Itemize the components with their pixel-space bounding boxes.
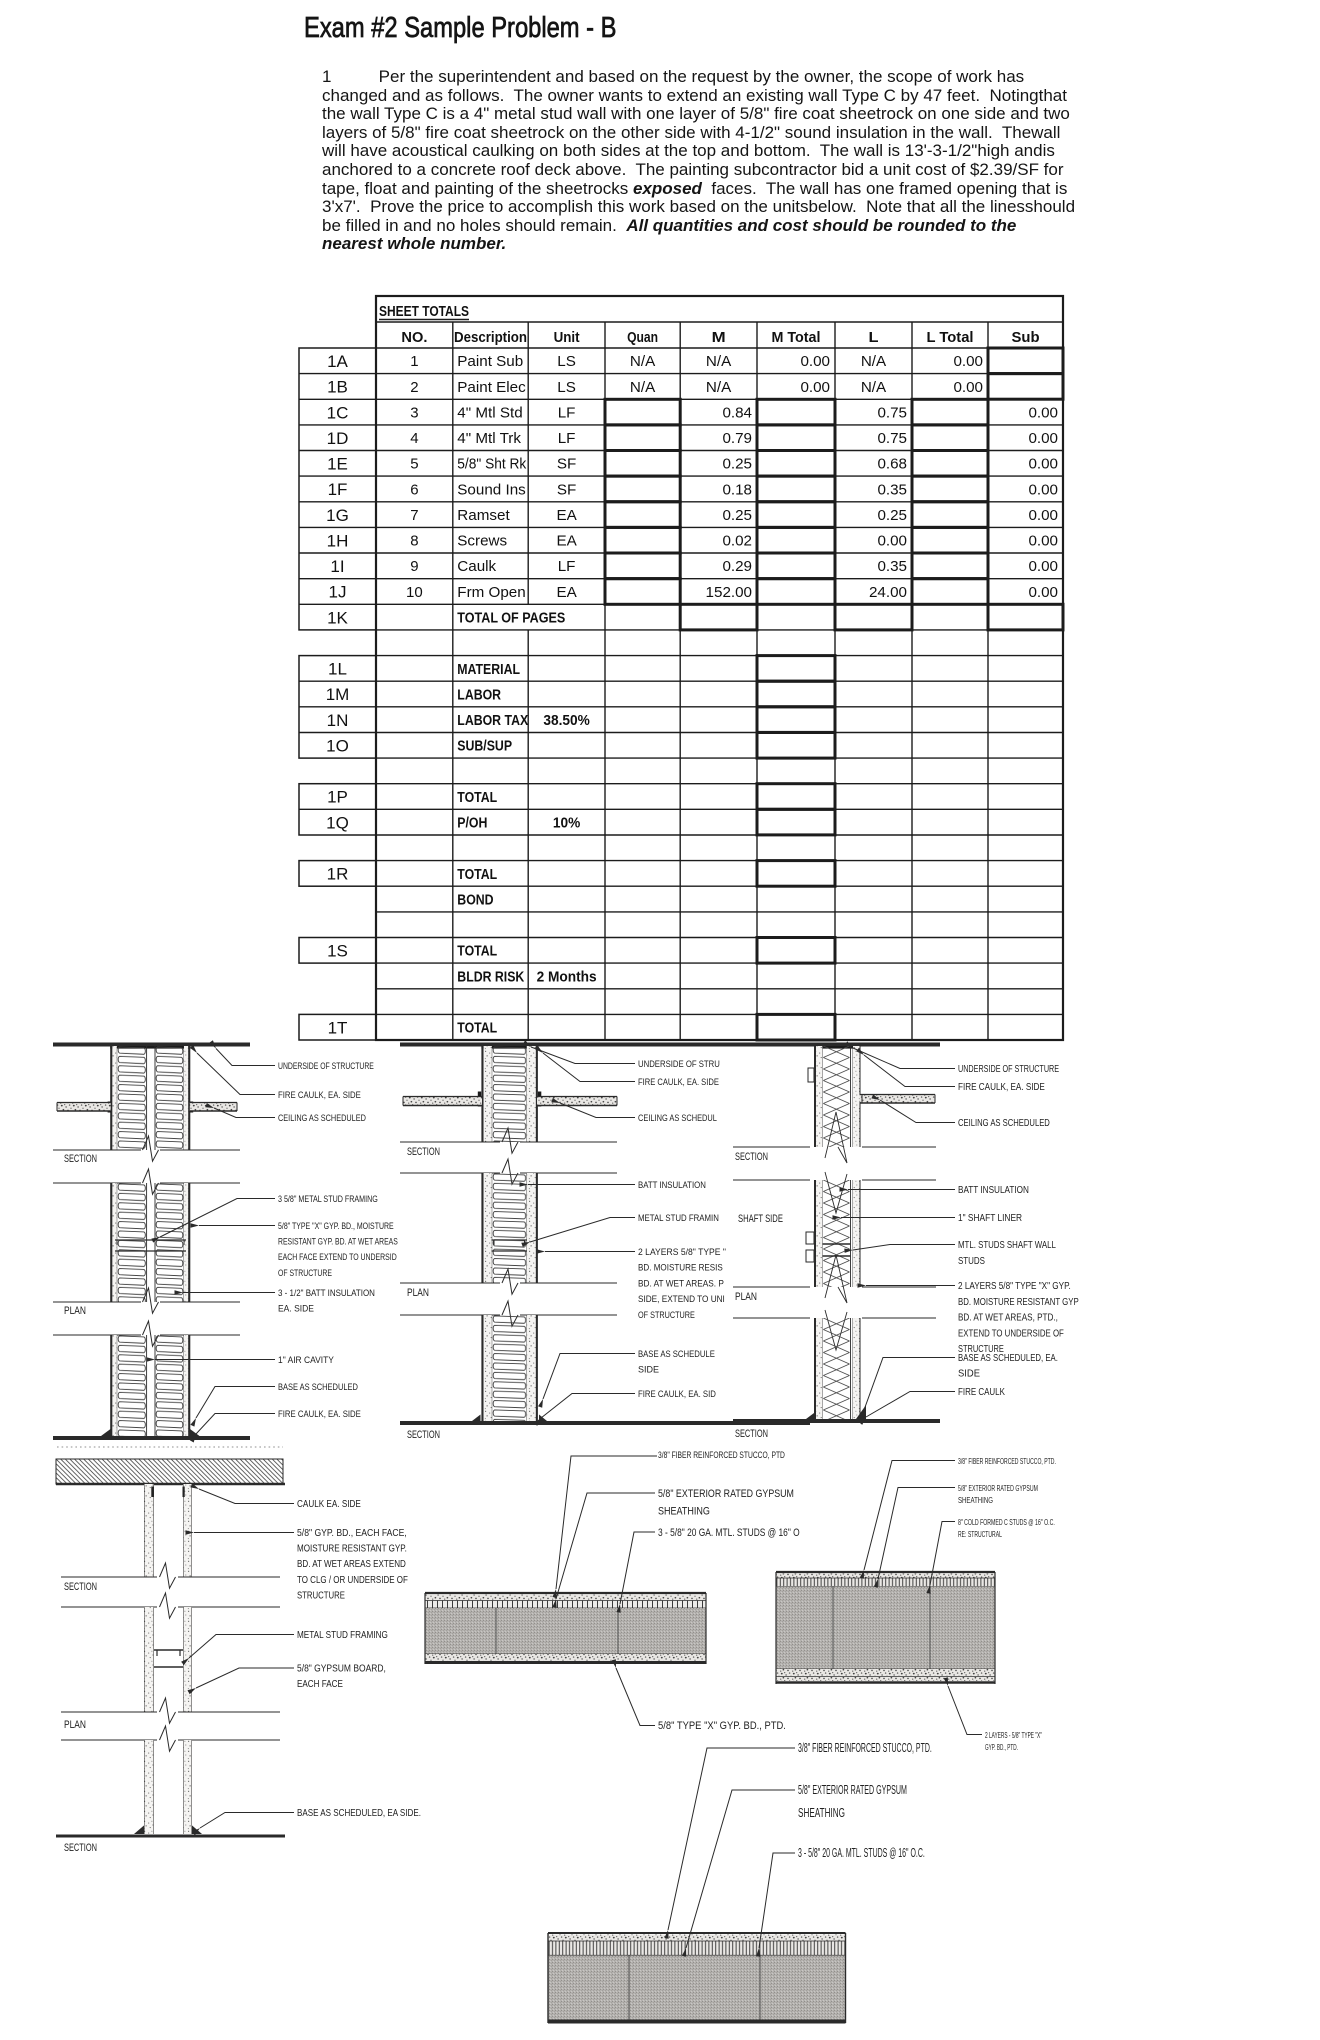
svg-text:STUDS: STUDS [958, 1255, 985, 1266]
svg-text:RESISTANT GYP. BD. AT WET AREA: RESISTANT GYP. BD. AT WET AREAS [278, 1235, 398, 1247]
svg-text:0.00: 0.00 [1028, 405, 1058, 422]
svg-text:N/A: N/A [861, 379, 887, 396]
svg-text:FIRE CAULK, EA. SIDE: FIRE CAULK, EA. SIDE [638, 1076, 719, 1087]
svg-text:LS: LS [557, 353, 576, 370]
svg-text:0.00: 0.00 [800, 379, 830, 396]
svg-text:7: 7 [410, 507, 418, 524]
svg-text:SUB/SUP: SUB/SUP [457, 738, 512, 755]
svg-text:5/8" EXTERIOR RATED GYPSUM: 5/8" EXTERIOR RATED GYPSUM [958, 1484, 1038, 1494]
svg-text:8: 8 [410, 533, 418, 550]
svg-text:PLAN: PLAN [64, 1719, 86, 1731]
svg-text:PLAN: PLAN [64, 1305, 86, 1317]
svg-text:5/8" TYPE "X" GYP. BD., MOISTU: 5/8" TYPE "X" GYP. BD., MOISTURE [278, 1220, 394, 1231]
svg-text:UNDERSIDE OF STRUCTURE: UNDERSIDE OF STRUCTURE [958, 1063, 1059, 1074]
svg-text:1F: 1F [328, 480, 348, 499]
svg-text:Sound Ins: Sound Ins [457, 481, 526, 498]
svg-text:5/8" TYPE "X" GYP. BD., PTD.: 5/8" TYPE "X" GYP. BD., PTD. [658, 1720, 786, 1732]
svg-text:N/A: N/A [630, 379, 656, 396]
svg-text:SHEET TOTALS: SHEET TOTALS [379, 303, 469, 320]
svg-text:BASE AS SCHEDULE: BASE AS SCHEDULE [638, 1348, 715, 1359]
svg-text:FIRE CAULK, EA. SIDE: FIRE CAULK, EA. SIDE [278, 1408, 361, 1419]
svg-text:1S: 1S [327, 942, 348, 961]
svg-text:2 LAYERS 5/8" TYPE ": 2 LAYERS 5/8" TYPE " [638, 1247, 726, 1258]
svg-text:4" Mtl Std: 4" Mtl Std [457, 405, 522, 422]
svg-text:0.84: 0.84 [722, 405, 752, 422]
svg-text:1J: 1J [329, 583, 347, 602]
svg-text:LABOR: LABOR [457, 686, 501, 703]
svg-text:LF: LF [558, 405, 576, 422]
svg-text:5: 5 [410, 456, 418, 473]
svg-text:BOND: BOND [457, 891, 493, 908]
svg-text:1M: 1M [326, 685, 350, 704]
svg-text:0.00: 0.00 [1028, 430, 1058, 447]
svg-text:TO CLG / OR UNDERSIDE OF: TO CLG / OR UNDERSIDE OF [297, 1574, 408, 1585]
svg-text:5/8" GYPSUM BOARD,: 5/8" GYPSUM BOARD, [297, 1663, 386, 1674]
svg-text:RE: STRUCTURAL: RE: STRUCTURAL [958, 1531, 1002, 1540]
svg-text:0.18: 0.18 [722, 481, 752, 498]
svg-text:3 - 1/2" BATT INSULATION: 3 - 1/2" BATT INSULATION [278, 1287, 375, 1298]
svg-text:OF STRUCTURE: OF STRUCTURE [638, 1309, 695, 1320]
svg-text:PLAN: PLAN [735, 1291, 757, 1303]
svg-text:EA: EA [556, 584, 577, 601]
svg-text:0.25: 0.25 [722, 507, 752, 524]
svg-text:0.29: 0.29 [722, 558, 752, 575]
svg-text:CEILING AS SCHEDULED: CEILING AS SCHEDULED [278, 1112, 366, 1123]
svg-text:EACH FACE EXTEND TO UNDERSID: EACH FACE EXTEND TO UNDERSID [278, 1251, 397, 1262]
svg-text:2 LAYERS 5/8" TYPE "X" GYP.: 2 LAYERS 5/8" TYPE "X" GYP. [958, 1280, 1071, 1291]
svg-text:0.00: 0.00 [953, 353, 983, 370]
svg-text:SHEATHING: SHEATHING [958, 1495, 993, 1505]
svg-text:0.00: 0.00 [1028, 507, 1058, 524]
svg-text:TOTAL: TOTAL [457, 943, 497, 960]
svg-text:L Total: L Total [927, 329, 974, 346]
svg-text:SECTION: SECTION [64, 1842, 97, 1854]
svg-text:3 - 5/8" 20 GA. MTL. STUDS @ 1: 3 - 5/8" 20 GA. MTL. STUDS @ 16" O [658, 1527, 800, 1539]
svg-text:CEILING AS SCHEDUL: CEILING AS SCHEDUL [638, 1112, 717, 1123]
svg-text:PLAN: PLAN [407, 1287, 429, 1299]
svg-text:2 Months: 2 Months [537, 968, 597, 985]
svg-text:3/8" FIBER REINFORCED STUCCO,: 3/8" FIBER REINFORCED STUCCO, PTD. [798, 1742, 932, 1756]
svg-text:SHEATHING: SHEATHING [658, 1506, 710, 1518]
svg-text:1A: 1A [327, 352, 348, 371]
svg-text:NO.: NO. [401, 329, 427, 346]
svg-text:SECTION: SECTION [64, 1581, 97, 1593]
svg-text:5/8" EXTERIOR RATED GYPSUM: 5/8" EXTERIOR RATED GYPSUM [658, 1488, 794, 1500]
svg-text:Unit: Unit [554, 329, 580, 346]
svg-text:BATT INSULATION: BATT INSULATION [638, 1179, 706, 1190]
svg-text:METAL STUD FRAMIN: METAL STUD FRAMIN [638, 1212, 719, 1223]
svg-text:TOTAL: TOTAL [457, 866, 497, 883]
svg-text:CEILING AS SCHEDULED: CEILING AS SCHEDULED [958, 1117, 1050, 1128]
svg-text:N/A: N/A [861, 353, 887, 370]
svg-text:SHAFT SIDE: SHAFT SIDE [738, 1213, 783, 1224]
svg-text:SIDE, EXTEND TO UNI: SIDE, EXTEND TO UNI [638, 1294, 725, 1305]
svg-text:BASE AS SCHEDULED, EA.: BASE AS SCHEDULED, EA. [958, 1352, 1058, 1363]
svg-text:SECTION: SECTION [64, 1153, 97, 1165]
svg-text:2 LAYERS - 5/8" TYPE "X": 2 LAYERS - 5/8" TYPE "X" [985, 1732, 1042, 1741]
svg-text:1K: 1K [327, 608, 348, 627]
svg-text:UNDERSIDE OF STRUCTURE: UNDERSIDE OF STRUCTURE [278, 1060, 374, 1072]
svg-text:Caulk: Caulk [457, 558, 496, 575]
svg-text:MOISTURE RESISTANT GYP.: MOISTURE RESISTANT GYP. [297, 1543, 407, 1554]
svg-text:1" SHAFT LINER: 1" SHAFT LINER [958, 1212, 1022, 1223]
svg-text:SECTION: SECTION [735, 1428, 768, 1440]
svg-text:N/A: N/A [706, 379, 732, 396]
svg-text:0.25: 0.25 [877, 507, 907, 524]
svg-text:EA: EA [556, 507, 577, 524]
svg-text:FIRE CAULK, EA. SIDE: FIRE CAULK, EA. SIDE [958, 1081, 1045, 1092]
svg-text:OF STRUCTURE: OF STRUCTURE [278, 1267, 332, 1278]
svg-text:M Total: M Total [772, 329, 821, 346]
svg-text:Paint Sub: Paint Sub [457, 353, 523, 370]
svg-text:SF: SF [557, 456, 576, 473]
svg-text:BD. MOISTURE RESIS: BD. MOISTURE RESIS [638, 1262, 723, 1273]
svg-text:0.79: 0.79 [722, 430, 752, 447]
svg-text:1T: 1T [328, 1018, 348, 1037]
svg-text:CAULK EA. SIDE: CAULK EA. SIDE [297, 1498, 361, 1509]
svg-text:SIDE: SIDE [638, 1364, 659, 1374]
svg-text:EA: EA [556, 533, 577, 550]
svg-text:FIRE CAULK, EA. SID: FIRE CAULK, EA. SID [638, 1388, 716, 1399]
svg-text:1I: 1I [330, 557, 344, 576]
svg-text:10%: 10% [553, 815, 581, 832]
svg-text:LS: LS [557, 379, 576, 396]
svg-text:SHEATHING: SHEATHING [798, 1806, 845, 1820]
svg-text:STRUCTURE: STRUCTURE [297, 1589, 345, 1600]
svg-text:MATERIAL: MATERIAL [457, 661, 520, 678]
svg-text:1: 1 [410, 353, 418, 370]
svg-text:FIRE CAULK: FIRE CAULK [958, 1386, 1005, 1397]
svg-text:MTL. STUDS SHAFT WALL: MTL. STUDS SHAFT WALL [958, 1239, 1056, 1250]
svg-text:BD. AT WET AREAS EXTEND: BD. AT WET AREAS EXTEND [297, 1558, 406, 1569]
svg-text:152.00: 152.00 [706, 584, 752, 601]
svg-text:1Q: 1Q [326, 813, 349, 832]
svg-text:TOTAL: TOTAL [457, 1020, 497, 1037]
svg-text:SIDE: SIDE [958, 1368, 980, 1379]
svg-text:Paint Elec: Paint Elec [457, 379, 526, 396]
svg-text:5/8" GYP. BD., EACH FACE,: 5/8" GYP. BD., EACH FACE, [297, 1527, 407, 1539]
svg-text:Description: Description [454, 329, 527, 346]
svg-text:3/8" FIBER REINFORCED STUCCO,: 3/8" FIBER REINFORCED STUCCO, PTD. [958, 1458, 1056, 1467]
svg-text:LABOR TAX: LABOR TAX [457, 712, 528, 729]
svg-text:BATT INSULATION: BATT INSULATION [958, 1184, 1029, 1195]
svg-text:5/8" Sht Rk: 5/8" Sht Rk [457, 456, 526, 473]
svg-text:0.02: 0.02 [722, 533, 752, 550]
svg-text:4: 4 [410, 430, 418, 447]
svg-text:1" AIR CAVITY: 1" AIR CAVITY [278, 1355, 334, 1366]
svg-text:TOTAL: TOTAL [457, 789, 497, 806]
svg-text:0.00: 0.00 [877, 533, 907, 550]
svg-text:1D: 1D [327, 429, 349, 448]
svg-text:1O: 1O [326, 737, 349, 756]
svg-text:Quan: Quan [627, 329, 658, 346]
svg-text:9: 9 [410, 558, 418, 575]
svg-text:3/8" FIBER REINFORCED STUCCO,: 3/8" FIBER REINFORCED STUCCO, PTD [658, 1450, 785, 1460]
svg-text:1B: 1B [327, 378, 348, 397]
svg-text:0.25: 0.25 [722, 456, 752, 473]
svg-text:5/8" EXTERIOR RATED GYPSUM: 5/8" EXTERIOR RATED GYPSUM [798, 1784, 907, 1798]
svg-text:Ramset: Ramset [457, 507, 510, 524]
svg-text:N/A: N/A [630, 353, 656, 370]
svg-text:3 - 5/8" 20 GA. MTL. STUDS @ 1: 3 - 5/8" 20 GA. MTL. STUDS @ 16" O.C. [798, 1847, 925, 1861]
svg-text:3: 3 [410, 405, 418, 422]
svg-text:SF: SF [557, 481, 576, 498]
svg-text:10: 10 [406, 584, 423, 601]
svg-text:3 5/8" METAL STUD FRAMING: 3 5/8" METAL STUD FRAMING [278, 1193, 378, 1204]
svg-text:1P: 1P [327, 788, 348, 807]
svg-text:1R: 1R [327, 865, 349, 884]
svg-text:N/A: N/A [706, 353, 732, 370]
svg-text:1G: 1G [326, 506, 349, 525]
svg-text:BASE AS SCHEDULED: BASE AS SCHEDULED [278, 1381, 358, 1392]
svg-text:P/OH: P/OH [457, 815, 487, 832]
svg-text:0.00: 0.00 [1028, 584, 1058, 601]
svg-text:LF: LF [558, 558, 576, 575]
svg-text:38.50%: 38.50% [543, 712, 590, 729]
svg-text:0.00: 0.00 [953, 379, 983, 396]
svg-text:1L: 1L [328, 660, 347, 679]
svg-text:0.35: 0.35 [877, 558, 907, 575]
svg-text:8" COLD FORMED C STUDS @ 16" O: 8" COLD FORMED C STUDS @ 16" O.C. [958, 1518, 1055, 1528]
svg-text:EA. SIDE: EA. SIDE [278, 1303, 314, 1314]
svg-text:L: L [869, 329, 879, 346]
svg-text:2: 2 [410, 379, 418, 396]
svg-text:1C: 1C [327, 403, 349, 422]
svg-text:0.00: 0.00 [1028, 558, 1058, 575]
svg-text:0.00: 0.00 [1028, 533, 1058, 550]
svg-text:UNDERSIDE OF STRU: UNDERSIDE OF STRU [638, 1058, 720, 1069]
svg-text:FIRE CAULK, EA. SIDE: FIRE CAULK, EA. SIDE [278, 1089, 361, 1100]
svg-text:0.68: 0.68 [877, 456, 907, 473]
svg-text:6: 6 [410, 481, 418, 498]
svg-text:Sub: Sub [1012, 329, 1040, 346]
svg-text:METAL STUD FRAMING: METAL STUD FRAMING [297, 1629, 388, 1640]
svg-text:1E: 1E [327, 455, 348, 474]
svg-text:1H: 1H [327, 531, 349, 550]
svg-text:BD. MOISTURE RESISTANT GYP: BD. MOISTURE RESISTANT GYP [958, 1296, 1079, 1307]
svg-text:GYP. BD., PTD.: GYP. BD., PTD. [985, 1744, 1018, 1753]
svg-text:LF: LF [558, 430, 576, 447]
svg-text:BD. AT WET AREAS, PTD.,: BD. AT WET AREAS, PTD., [958, 1312, 1058, 1323]
svg-text:Screws: Screws [457, 533, 507, 550]
svg-text:0.75: 0.75 [877, 405, 907, 422]
svg-text:SECTION: SECTION [407, 1429, 440, 1441]
svg-text:SECTION: SECTION [735, 1151, 768, 1163]
svg-text:EACH FACE: EACH FACE [297, 1678, 343, 1689]
svg-text:M: M [712, 329, 726, 346]
svg-text:0.35: 0.35 [877, 481, 907, 498]
svg-text:BD. AT WET AREAS. P: BD. AT WET AREAS. P [638, 1278, 724, 1289]
svg-text:SECTION: SECTION [407, 1146, 440, 1158]
svg-text:Frm Open: Frm Open [457, 584, 525, 601]
svg-text:BLDR RISK: BLDR RISK [457, 968, 524, 985]
svg-text:24.00: 24.00 [869, 584, 907, 601]
svg-text:BASE AS SCHEDULED, EA SIDE.: BASE AS SCHEDULED, EA SIDE. [297, 1807, 421, 1818]
svg-text:1N: 1N [327, 711, 349, 730]
svg-text:0.00: 0.00 [800, 353, 830, 370]
svg-text:0.75: 0.75 [877, 430, 907, 447]
svg-text:0.00: 0.00 [1028, 481, 1058, 498]
svg-text:EXTEND TO UNDERSIDE OF: EXTEND TO UNDERSIDE OF [958, 1328, 1064, 1339]
svg-text:4" Mtl Trk: 4" Mtl Trk [457, 430, 521, 447]
svg-text:TOTAL OF PAGES: TOTAL OF PAGES [457, 610, 565, 627]
svg-text:0.00: 0.00 [1028, 456, 1058, 473]
